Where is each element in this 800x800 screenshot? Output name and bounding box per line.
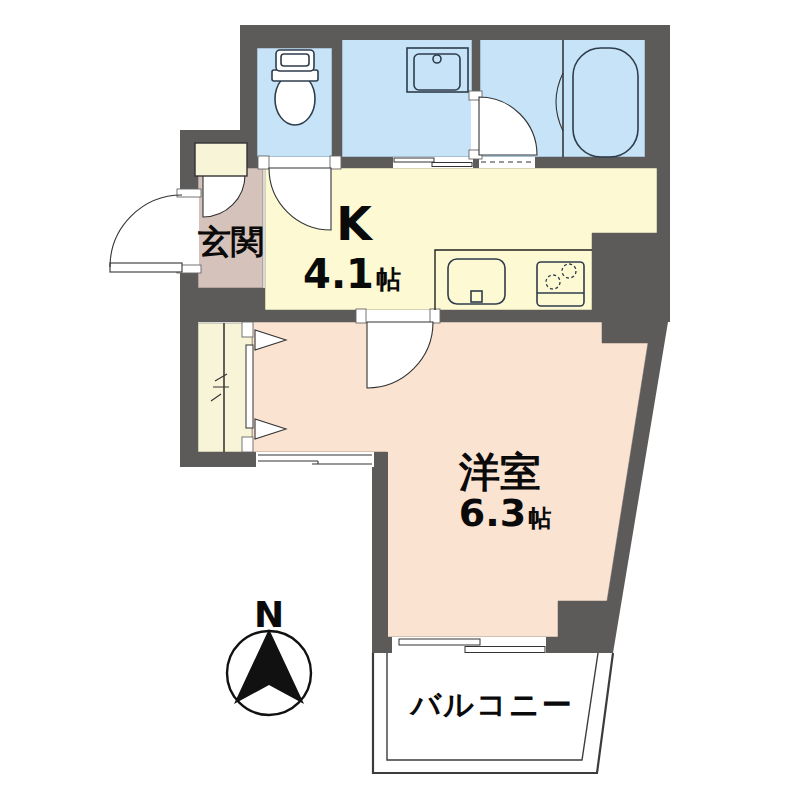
closet-jamb-top <box>242 322 253 337</box>
kitchen-label: K <box>336 197 374 251</box>
western-door-jamb-left <box>356 309 366 323</box>
wall-right-counter <box>592 233 670 322</box>
closet-folding-door <box>246 345 253 428</box>
front-door-jamb-top <box>177 189 201 197</box>
compass-north-label: N <box>254 594 284 635</box>
west-window-opening <box>256 452 374 467</box>
toilet-fixture <box>272 50 318 125</box>
front-door-swing-arc <box>110 195 182 267</box>
wall-toilet-right <box>332 25 342 157</box>
toilet-doorway <box>269 157 330 168</box>
toilet-door-jamb-right <box>330 156 341 169</box>
wall-toilet-left <box>240 25 257 157</box>
closet-jamb-bottom <box>242 437 253 452</box>
wall-right-upper <box>645 25 670 157</box>
floor-plan: N 玄関 K 4.1帖 洋室 6.3帖 バルコニー <box>0 0 800 800</box>
compass: N <box>227 594 311 715</box>
wall-lower-left-vertical <box>372 452 388 653</box>
washroom-slider-sash-1 <box>394 158 434 162</box>
balcony-slider-sash-1 <box>399 639 480 645</box>
genkan-label: 玄関 <box>197 222 264 261</box>
western-size-unit: 帖 <box>528 505 551 531</box>
western-room-label: 洋室 <box>458 448 541 496</box>
balcony-label: バルコニー <box>409 687 574 722</box>
kitchen-size-unit: 帖 <box>376 265 401 294</box>
shoe-cabinet <box>195 143 247 176</box>
floor-plan-svg: N 玄関 K 4.1帖 洋室 6.3帖 バルコニー <box>0 0 800 800</box>
front-door-opening <box>179 196 199 266</box>
front-door-leaf <box>110 263 182 272</box>
toilet-door-jamb-left <box>258 156 269 169</box>
balcony-slider-sash-2 <box>465 647 545 653</box>
western-door-jamb-right <box>430 309 440 323</box>
western-size-number: 6.3 <box>459 491 526 535</box>
kitchen-western-doorway <box>365 310 432 322</box>
wall-right-mid <box>657 157 670 233</box>
genkan-furniture <box>195 143 247 176</box>
western-room-floor <box>252 322 648 637</box>
wall-top <box>240 25 670 40</box>
washroom-slider-sash-2 <box>432 163 472 167</box>
kitchen-size-number: 4.1 <box>303 251 374 297</box>
